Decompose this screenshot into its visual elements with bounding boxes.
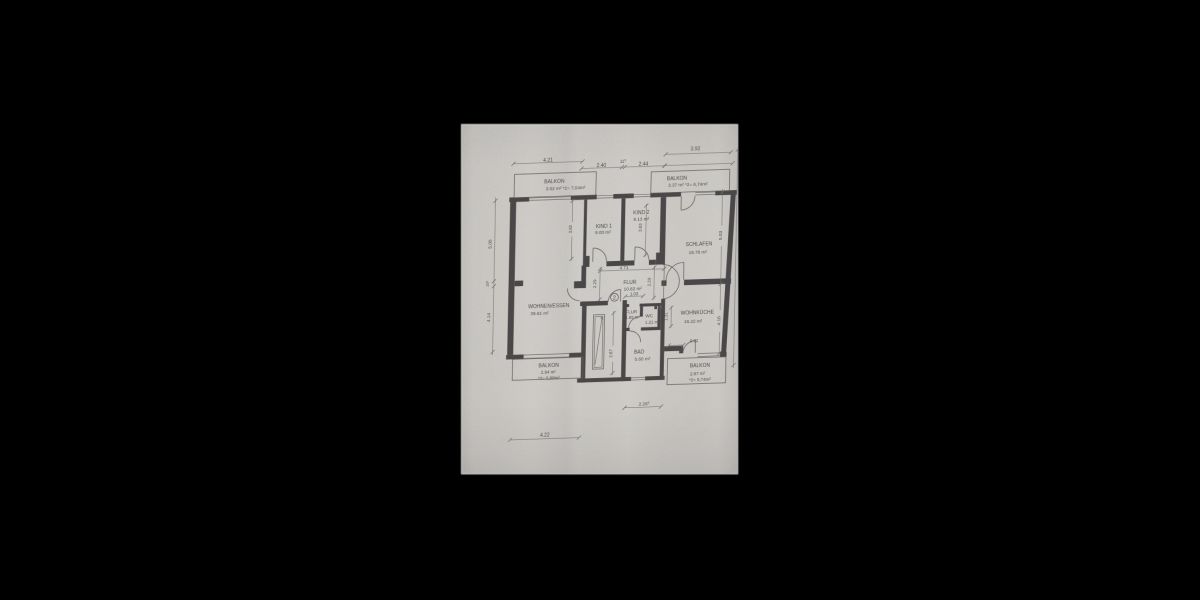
svg-text:4.71: 4.71 (619, 265, 628, 270)
svg-text:WOHNKÜCHE: WOHNKÜCHE (681, 309, 715, 317)
svg-text:BALKON: BALKON (667, 175, 688, 182)
svg-text:2: 2 (613, 295, 616, 301)
svg-text:2.29: 2.29 (592, 279, 597, 288)
svg-text:1.21 m²: 1.21 m² (645, 319, 660, 324)
svg-text:2.87: 2.87 (608, 348, 613, 357)
svg-text:1.31: 1.31 (664, 312, 669, 321)
svg-text:5.60 m²: 5.60 m² (635, 356, 651, 362)
svg-text:BALKON: BALKON (544, 179, 565, 186)
svg-text:16.22 m²: 16.22 m² (684, 318, 703, 324)
svg-text:9.00 m²: 9.00 m² (595, 230, 611, 236)
svg-text:3.92: 3.92 (691, 146, 701, 152)
svg-text:0.92: 0.92 (690, 338, 699, 343)
svg-text:1.59 m²: 1.59 m² (625, 315, 640, 320)
svg-text:3.83: 3.83 (638, 223, 643, 232)
svg-text:4.21: 4.21 (543, 158, 553, 164)
svg-text:2.87 m²: 2.87 m² (690, 371, 706, 377)
svg-text:FLUR: FLUR (626, 309, 638, 314)
svg-text:4.16: 4.16 (716, 316, 722, 326)
svg-text:2.94 m²: 2.94 m² (541, 369, 557, 375)
svg-text:KIND 2: KIND 2 (633, 210, 649, 217)
svg-text:*2= 5,88m²: *2= 5,88m² (538, 375, 560, 381)
svg-text:19.78 m²: 19.78 m² (689, 250, 708, 256)
svg-text:*2= 5,74m²: *2= 5,74m² (689, 376, 711, 382)
svg-text:2.29: 2.29 (647, 277, 652, 286)
svg-text:WC: WC (645, 313, 653, 318)
svg-text:4.14: 4.14 (486, 312, 492, 322)
svg-text:9.13 m²: 9.13 m² (633, 216, 649, 222)
svg-text:3.82: 3.82 (568, 224, 573, 233)
svg-text:5.05: 5.05 (488, 239, 494, 249)
svg-text:2.44: 2.44 (638, 162, 648, 168)
svg-text:39.61 m²: 39.61 m² (530, 310, 549, 316)
svg-text:1.03: 1.03 (630, 291, 639, 296)
svg-text:5.03: 5.03 (718, 230, 724, 240)
svg-text:BALKON: BALKON (539, 363, 560, 370)
svg-text:SCHLAFEN: SCHLAFEN (686, 241, 713, 248)
svg-text:FLUR: FLUR (623, 280, 637, 286)
svg-text:BALKON: BALKON (690, 363, 711, 370)
svg-text:BAD: BAD (634, 350, 645, 356)
svg-text:2.40: 2.40 (596, 163, 606, 169)
svg-text:4.22: 4.22 (540, 433, 550, 439)
